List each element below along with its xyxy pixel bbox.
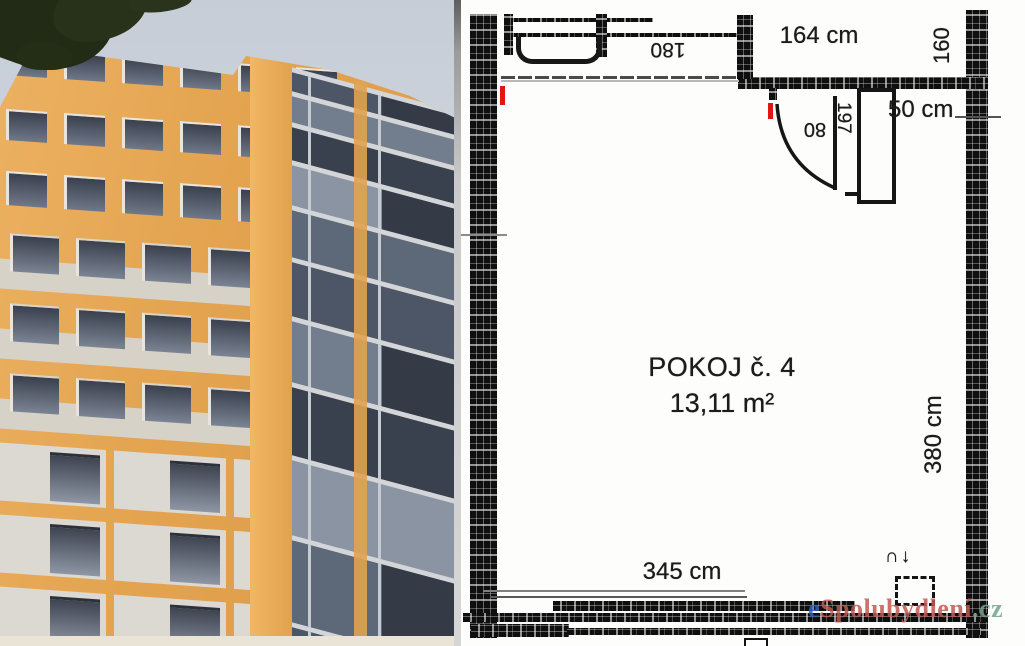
wardrobe-foot-line [845, 192, 859, 196]
wall-left [470, 14, 497, 638]
tower-orange-strip [354, 64, 367, 646]
facade-window [50, 452, 100, 504]
facade-window [142, 382, 191, 423]
facade-window [180, 121, 221, 155]
facade-window [170, 460, 220, 512]
facade-window [122, 55, 163, 86]
radiator-mark: ∩↓ [885, 546, 912, 568]
facade-window [10, 373, 59, 414]
balcony-mullion [378, 563, 381, 646]
facade-window [6, 171, 47, 208]
facade-window [50, 524, 100, 576]
bottom-window-bar [567, 628, 981, 635]
balcony-mullion [378, 285, 381, 340]
balcony-mullion [378, 95, 381, 115]
facade-window [122, 117, 163, 151]
balcony-mullion [378, 410, 381, 479]
building-photo [0, 0, 455, 646]
watermark-tld: .cz [972, 594, 1003, 623]
facade-window [64, 113, 105, 147]
bathroom-wall-stub [504, 14, 513, 55]
balcony-mullion [378, 150, 381, 184]
facade-window [76, 308, 125, 349]
room-name-label: POKOJ č. 4 [601, 352, 843, 383]
balcony-mullion [308, 101, 311, 128]
wall-top-thin [501, 76, 741, 79]
facade-window [122, 179, 163, 216]
facade-window [6, 109, 47, 143]
facade-window [10, 233, 59, 274]
facade-window [142, 242, 191, 283]
balcony-mullion [308, 267, 311, 322]
tower-pillar [250, 36, 292, 646]
facade-window [142, 312, 191, 353]
balcony-mullion [378, 483, 381, 559]
balcony-mullion [308, 132, 311, 166]
bottom-edge-square [744, 638, 768, 646]
door-jamb-wall [737, 15, 753, 79]
balcony-mullion [308, 326, 311, 388]
dimension-label-room-depth: 380 cm [920, 350, 948, 474]
room-area-label: 13,11 m² [601, 388, 843, 419]
listing-image: 164 cm 160 50 cm 180 80 197 380 cm 345 c… [0, 0, 1025, 646]
balcony-mullion [378, 119, 381, 146]
facade-window [10, 303, 59, 344]
facade-window [64, 175, 105, 212]
tree-foliage [16, 42, 72, 70]
balcony-mullion [308, 77, 311, 97]
dimension-label-bathroom: 180 [642, 37, 694, 61]
watermark-prefix: e [808, 594, 820, 623]
balcony-mullion [308, 215, 311, 263]
apartment-building [0, 0, 455, 646]
balcony-mullion [308, 545, 311, 628]
dimension-label-hall-depth: 160 [929, 6, 955, 64]
bottom-wall-corner [471, 624, 569, 637]
dimension-label-wardrobe: 197 [832, 102, 854, 154]
window-sill-line [483, 590, 745, 592]
balcony-mullion [378, 344, 381, 406]
facade-window [76, 378, 125, 419]
dimension-label-hall-width: 164 cm [757, 22, 881, 50]
balcony-mullion [378, 188, 381, 229]
facade-window [76, 238, 125, 279]
bathroom-wall-upper [505, 18, 653, 22]
facade-window [180, 59, 221, 90]
dimension-label-niche: 50 cm [888, 96, 980, 124]
watermark-brand: Spolubydlení [820, 594, 972, 623]
door-hinge-stub [769, 88, 777, 100]
balcony-mullion [308, 465, 311, 541]
floor-plan: 164 cm 160 50 cm 180 80 197 380 cm 345 c… [461, 0, 1025, 646]
red-marker [500, 86, 505, 105]
facade-window [170, 532, 220, 584]
dimension-label-door: 80 [798, 117, 832, 140]
window-sill-line [491, 596, 747, 598]
bathtub-outline [516, 37, 602, 64]
dimension-label-room-width: 345 cm [620, 558, 744, 586]
photo-bottom-strip [0, 636, 455, 646]
balcony-tower [250, 36, 455, 646]
dimension-tick [461, 234, 507, 236]
facade-window [180, 183, 221, 220]
balcony-mullion [308, 392, 311, 461]
wall-top-thin-shadow [501, 80, 739, 82]
balcony-mullion [378, 233, 381, 281]
balcony-mullion [308, 170, 311, 211]
red-marker [768, 103, 773, 119]
watermark: eSpolubydlení.cz [808, 594, 1003, 624]
